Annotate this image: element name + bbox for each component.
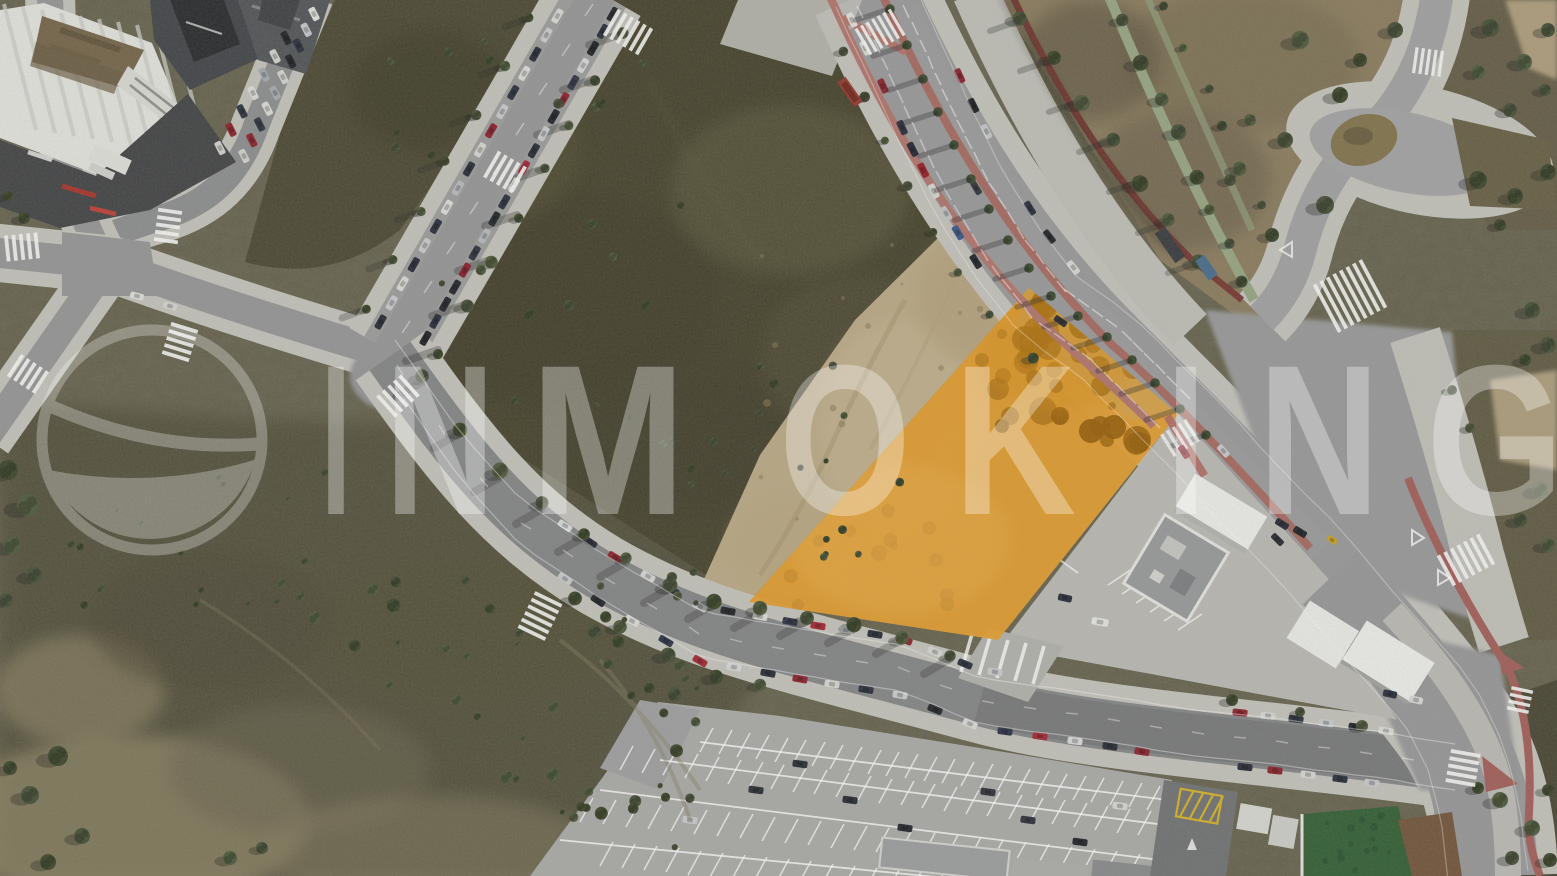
svg-text:M: M xyxy=(530,321,686,560)
svg-text:G: G xyxy=(1426,321,1557,560)
svg-text:I: I xyxy=(1167,321,1205,560)
svg-text:I: I xyxy=(321,321,351,560)
svg-text:N: N xyxy=(1258,321,1380,560)
svg-text:K: K xyxy=(954,321,1076,560)
svg-text:O: O xyxy=(779,321,911,560)
svg-text:N: N xyxy=(385,321,495,560)
